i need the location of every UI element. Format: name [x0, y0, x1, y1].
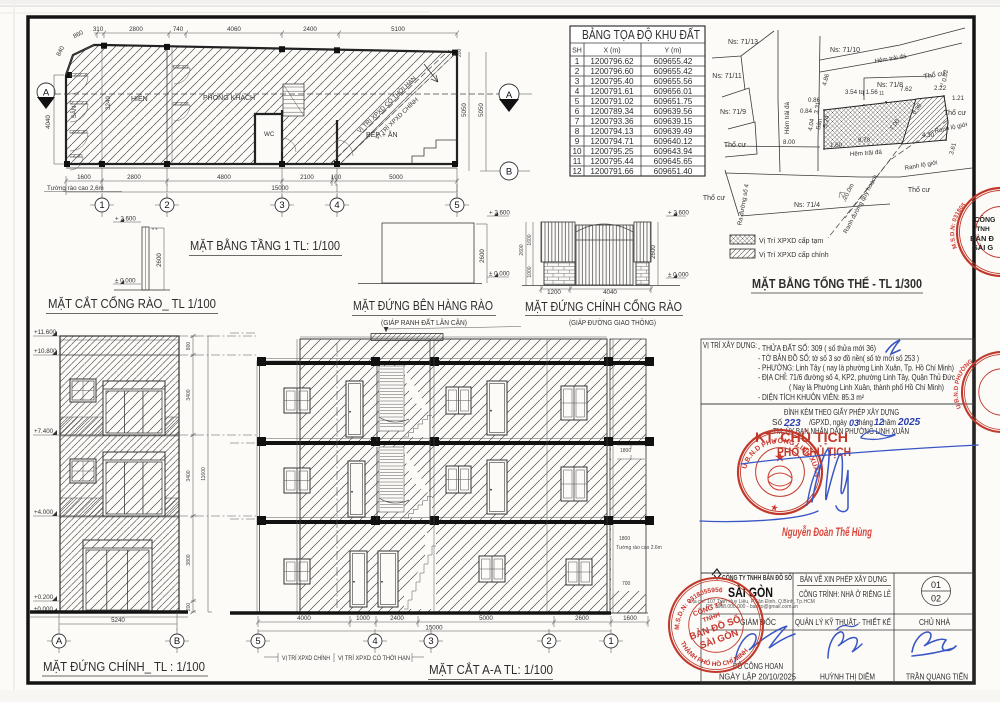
svg-text:Nguyễn Đoàn Thế Hùng: Nguyễn Đoàn Thế Hùng — [782, 524, 872, 539]
svg-text:Y (m): Y (m) — [665, 48, 682, 55]
svg-text:MẶT ĐỨNG CHÍNH_ TL : 1/100: MẶT ĐỨNG CHÍNH_ TL : 1/100 — [43, 659, 205, 674]
svg-text:BẢN VẼ XIN PHÉP XÂY DỰNG: BẢN VẼ XIN PHÉP XÂY DỰNG — [800, 573, 887, 584]
svg-text:SÀI G: SÀI G — [973, 243, 994, 252]
svg-text:2: 2 — [164, 200, 169, 211]
svg-text:1: 1 — [608, 636, 613, 647]
svg-text:5000: 5000 — [389, 174, 403, 181]
svg-text:11600: 11600 — [201, 467, 207, 481]
svg-text:2600: 2600 — [479, 249, 486, 263]
svg-text:+7.400: +7.400 — [34, 428, 54, 435]
svg-text:02: 02 — [931, 594, 941, 604]
svg-text:1600: 1600 — [527, 234, 533, 245]
svg-text:4040: 4040 — [603, 289, 617, 296]
svg-text:MẶT BẰNG TỔNG THỂ - TL 1/300: MẶT BẰNG TỔNG THỂ - TL 1/300 — [752, 276, 922, 291]
svg-text:1800: 1800 — [619, 536, 630, 542]
svg-text:5050: 5050 — [461, 103, 468, 117]
svg-text:12: 12 — [874, 417, 884, 427]
svg-text:9: 9 — [575, 137, 580, 146]
svg-text:MẶT ĐỨNG CHÍNH CỔNG RÀO: MẶT ĐỨNG CHÍNH CỔNG RÀO — [525, 299, 682, 314]
svg-text:0.84: 0.84 — [800, 108, 813, 115]
svg-text:Ns: 71/9: Ns: 71/9 — [720, 109, 746, 116]
svg-text:2600: 2600 — [650, 245, 657, 259]
svg-text:+0.200: +0.200 — [34, 594, 54, 601]
svg-text:B: B — [174, 636, 180, 647]
svg-text:11: 11 — [573, 157, 582, 166]
svg-text:10: 10 — [572, 147, 582, 156]
svg-text:1200793.36: 1200793.36 — [590, 117, 634, 126]
svg-text:X (m): X (m) — [603, 48, 620, 55]
svg-text:BẢNG TỌA ĐỘ KHU ĐẤT: BẢNG TỌA ĐỘ KHU ĐẤT — [582, 27, 700, 42]
svg-text:SH: SH — [572, 48, 582, 55]
svg-text:3.54 tq 1.56: 3.54 tq 1.56 — [845, 89, 878, 96]
svg-text:6: 6 — [575, 107, 580, 116]
svg-text:3400: 3400 — [186, 389, 192, 400]
svg-text:4040: 4040 — [45, 115, 52, 129]
svg-text:- THỬA ĐẤT SỐ: 309 ( số thửa: - THỬA ĐẤT SỐ: 309 ( số thửa mới 36) — [758, 342, 876, 353]
svg-text:5: 5 — [575, 97, 580, 106]
svg-text:4800: 4800 — [217, 174, 231, 181]
svg-text:MẶT CẮT CỔNG RÀO_ TL 1/100: MẶT CẮT CỔNG RÀO_ TL 1/100 — [48, 296, 216, 311]
svg-text:5100: 5100 — [391, 26, 405, 33]
svg-text:5050: 5050 — [478, 103, 485, 117]
svg-text:15000: 15000 — [271, 185, 289, 192]
svg-text:3: 3 — [279, 200, 284, 211]
svg-text:1.21: 1.21 — [952, 95, 965, 102]
svg-text:3: 3 — [575, 77, 580, 86]
svg-text:609651.40: 609651.40 — [654, 167, 693, 176]
svg-text:609651.75: 609651.75 — [654, 97, 693, 106]
svg-text:VỊ TRÍ XÂY DỰNG:: VỊ TRÍ XÂY DỰNG: — [703, 340, 757, 350]
svg-text:609639.15: 609639.15 — [654, 117, 693, 126]
svg-text:Ns: 71/11: Ns: 71/11 — [712, 73, 742, 80]
svg-text:609643.94: 609643.94 — [654, 147, 693, 156]
svg-text:2600: 2600 — [156, 253, 163, 267]
svg-text:( Nay là Phường Linh Xuân, thà: ( Nay là Phường Linh Xuân, thành phố Hồ … — [789, 383, 944, 392]
svg-text:Thổ cư: Thổ cư — [724, 141, 747, 149]
svg-text:1200795.44: 1200795.44 — [590, 157, 634, 166]
svg-text:tháng: tháng — [857, 418, 873, 427]
svg-text:A: A — [56, 636, 63, 647]
svg-text:± 0.000: ± 0.000 — [489, 271, 510, 278]
svg-text:100: 100 — [331, 174, 342, 181]
svg-text:609655.42: 609655.42 — [654, 67, 693, 76]
svg-text:TNH: TNH — [976, 226, 990, 233]
svg-text:2400: 2400 — [390, 615, 404, 622]
svg-text:3240: 3240 — [105, 96, 112, 110]
svg-text:BẢN Đ: BẢN Đ — [970, 234, 994, 243]
svg-text:01: 01 — [931, 580, 941, 590]
svg-text:2400: 2400 — [303, 26, 317, 33]
svg-text:Ns: 71/13: Ns: 71/13 — [728, 39, 758, 46]
svg-text:310: 310 — [93, 26, 104, 33]
svg-text:CHỦ NHÀ: CHỦ NHÀ — [919, 616, 950, 627]
svg-text:4060: 4060 — [227, 26, 241, 33]
svg-text:+ 2.600: + 2.600 — [115, 216, 136, 223]
svg-text:700: 700 — [622, 581, 631, 587]
svg-text:+ 2.600: + 2.600 — [668, 210, 689, 217]
svg-text:năm: năm — [883, 418, 896, 427]
svg-text:CÔNG TRÌNH: NHÀ Ở RIÊNG LẺ: CÔNG TRÌNH: NHÀ Ở RIÊNG LẺ — [799, 588, 891, 599]
svg-text:200: 200 — [457, 48, 463, 57]
svg-text:Thổ cư: Thổ cư — [908, 186, 931, 194]
svg-text:1200796.62: 1200796.62 — [590, 57, 634, 66]
svg-text:VỊ TRÍ XPXD CHÍNH: VỊ TRÍ XPXD CHÍNH — [282, 655, 330, 662]
svg-text:1200794.71: 1200794.71 — [590, 137, 634, 146]
svg-text:2600: 2600 — [575, 615, 589, 622]
svg-text:- PHƯỜNG: Linh Tây ( nay là p: - PHƯỜNG: Linh Tây ( nay là phường Linh … — [758, 363, 954, 373]
svg-text:8.00: 8.00 — [783, 139, 796, 146]
svg-text:5: 5 — [255, 636, 260, 647]
svg-text:1200795.25: 1200795.25 — [590, 147, 634, 156]
svg-text:2: 2 — [546, 636, 551, 647]
svg-text:3: 3 — [428, 636, 433, 647]
svg-text:2800: 2800 — [129, 26, 143, 33]
svg-text:Vị Trí XPXD cấp tạm: Vị Trí XPXD cấp tạm — [759, 236, 823, 245]
svg-text:3800: 3800 — [186, 554, 192, 565]
svg-text:1000: 1000 — [527, 266, 533, 277]
svg-text:1: 1 — [99, 200, 104, 211]
svg-text:HUỲNH THỊ DIỄM: HUỲNH THỊ DIỄM — [820, 671, 875, 682]
svg-text:WC: WC — [264, 131, 275, 138]
svg-text:/GPXD, ngày: /GPXD, ngày — [809, 418, 848, 427]
svg-text:4: 4 — [334, 200, 339, 211]
svg-text:B: B — [506, 167, 512, 178]
svg-text:2: 2 — [940, 83, 943, 89]
svg-text:5000: 5000 — [479, 615, 493, 622]
svg-text:1200789.34: 1200789.34 — [590, 107, 634, 116]
svg-text:(GIÁP ĐƯỜNG GIAO THÔNG): (GIÁP ĐƯỜNG GIAO THÔNG) — [569, 318, 656, 327]
svg-text:5: 5 — [454, 200, 459, 211]
svg-text:609639.56: 609639.56 — [654, 107, 693, 116]
svg-text:1200795.40: 1200795.40 — [590, 77, 634, 86]
svg-text:+ 2.600: + 2.600 — [489, 210, 510, 217]
svg-text:609639.49: 609639.49 — [654, 127, 693, 136]
svg-text:Ns: 71/4: Ns: 71/4 — [794, 202, 820, 209]
svg-text:1200791.61: 1200791.61 — [590, 87, 634, 96]
svg-text:2100: 2100 — [300, 174, 314, 181]
svg-text:Ns: 71/10: Ns: 71/10 — [830, 47, 860, 54]
svg-text:1200791.02: 1200791.02 — [590, 97, 634, 106]
svg-text:609656.01: 609656.01 — [654, 87, 693, 96]
svg-text:Thổ cư: Thổ cư — [703, 194, 726, 202]
svg-text:Ns: 71/8: Ns: 71/8 — [877, 82, 903, 89]
svg-text:ĐÍNH KÈM THEO GIẤY PHÉP XÂY DỰ: ĐÍNH KÈM THEO GIẤY PHÉP XÂY DỰNG — [784, 407, 899, 417]
svg-text:1200: 1200 — [547, 289, 561, 296]
svg-text:± 0.000: ± 0.000 — [115, 278, 136, 285]
svg-text:Tường rào cao 2,6m: Tường rào cao 2,6m — [47, 185, 104, 192]
svg-text:Vị Trí XPXD cấp chính: Vị Trí XPXD cấp chính — [759, 250, 829, 259]
svg-text:12: 12 — [572, 167, 582, 176]
svg-text:A: A — [43, 88, 50, 99]
svg-text:Tường rào cao 2.6m: Tường rào cao 2.6m — [616, 545, 662, 551]
svg-text:1600: 1600 — [77, 174, 91, 181]
svg-text:740: 740 — [173, 26, 184, 33]
svg-text:TRẦN QUANG TIẾN: TRẦN QUANG TIẾN — [906, 672, 968, 682]
svg-text:GIÁM ĐỐC: GIÁM ĐỐC — [740, 616, 776, 627]
svg-text:800: 800 — [186, 342, 192, 351]
svg-text:SÂN: SÂN — [71, 106, 78, 119]
svg-text:1: 1 — [575, 57, 580, 66]
svg-text:- DIỆN TÍCH KHUÔN VIÊN: 85.3 m: - DIỆN TÍCH KHUÔN VIÊN: 85.3 m² — [758, 392, 864, 402]
svg-text:+4.000: +4.000 — [34, 509, 54, 516]
svg-text:4: 4 — [575, 87, 580, 96]
svg-text:± 0.000: ± 0.000 — [668, 272, 689, 279]
svg-text:1200794.13: 1200794.13 — [590, 127, 634, 136]
svg-text:- ĐỊA CHỈ: 71/6 đường số 4,: - ĐỊA CHỈ: 71/6 đường số 4, KP2, phường … — [758, 371, 955, 382]
svg-text:MẶT BẰNG TẦNG 1 TL: 1/100: MẶT BẰNG TẦNG 1 TL: 1/100 — [190, 238, 340, 253]
svg-text:1.60: 1.60 — [830, 142, 843, 149]
svg-text:1000: 1000 — [356, 615, 370, 622]
svg-text:* *: * * — [152, 228, 157, 234]
svg-text:7: 7 — [575, 117, 580, 126]
svg-text:HIÊN: HIÊN — [131, 94, 148, 103]
svg-text:Số: Số — [772, 418, 782, 427]
svg-text:MẶT CẮT A-A TL: 1/100: MẶT CẮT A-A TL: 1/100 — [429, 662, 553, 677]
svg-text:15000: 15000 — [425, 625, 443, 632]
svg-text:609655.42: 609655.42 — [654, 57, 693, 66]
svg-text:4.30: 4.30 — [922, 132, 935, 139]
svg-text:1600: 1600 — [623, 615, 637, 622]
svg-text:609640.12: 609640.12 — [654, 137, 693, 146]
svg-text:5240: 5240 — [111, 617, 125, 624]
svg-text:609655.56: 609655.56 — [654, 77, 693, 86]
svg-text:2600: 2600 — [519, 244, 525, 255]
svg-text:2800: 2800 — [127, 174, 141, 181]
svg-text:609645.65: 609645.65 — [654, 157, 693, 166]
svg-text:9.70: 9.70 — [858, 137, 871, 144]
svg-text:NGÀY LẬP 20/10/2025: NGÀY LẬP 20/10/2025 — [719, 672, 796, 682]
svg-text:4: 4 — [372, 636, 377, 647]
svg-text:1800: 1800 — [620, 448, 631, 454]
svg-text:11: 11 — [879, 91, 884, 97]
svg-text:2: 2 — [575, 67, 580, 76]
svg-text:200: 200 — [186, 603, 192, 612]
svg-text:CÔNG: CÔNG — [975, 215, 997, 224]
svg-text:Thổ cư: Thổ cư — [944, 109, 967, 117]
svg-text:3400: 3400 — [186, 470, 192, 481]
svg-text:8: 8 — [575, 127, 580, 136]
svg-text:- TỜ BẢN ĐỒ SỐ: tờ số 3 sơ đồ: - TỜ BẢN ĐỒ SỐ: tờ số 3 sơ đồ nền( số tờ… — [758, 352, 919, 363]
svg-text:VỊ TRÍ XPXD CÓ THỜI HẠN: VỊ TRÍ XPXD CÓ THỜI HẠN — [338, 655, 410, 662]
svg-text:4000: 4000 — [297, 615, 311, 622]
svg-text:MẶT ĐỨNG BÊN HÀNG RÀO: MẶT ĐỨNG BÊN HÀNG RÀO — [353, 298, 493, 313]
svg-text:Hẻm trải đá: Hẻm trải đá — [784, 101, 791, 134]
svg-text:1200791.66: 1200791.66 — [590, 167, 634, 176]
svg-text:1200796.60: 1200796.60 — [590, 67, 634, 76]
